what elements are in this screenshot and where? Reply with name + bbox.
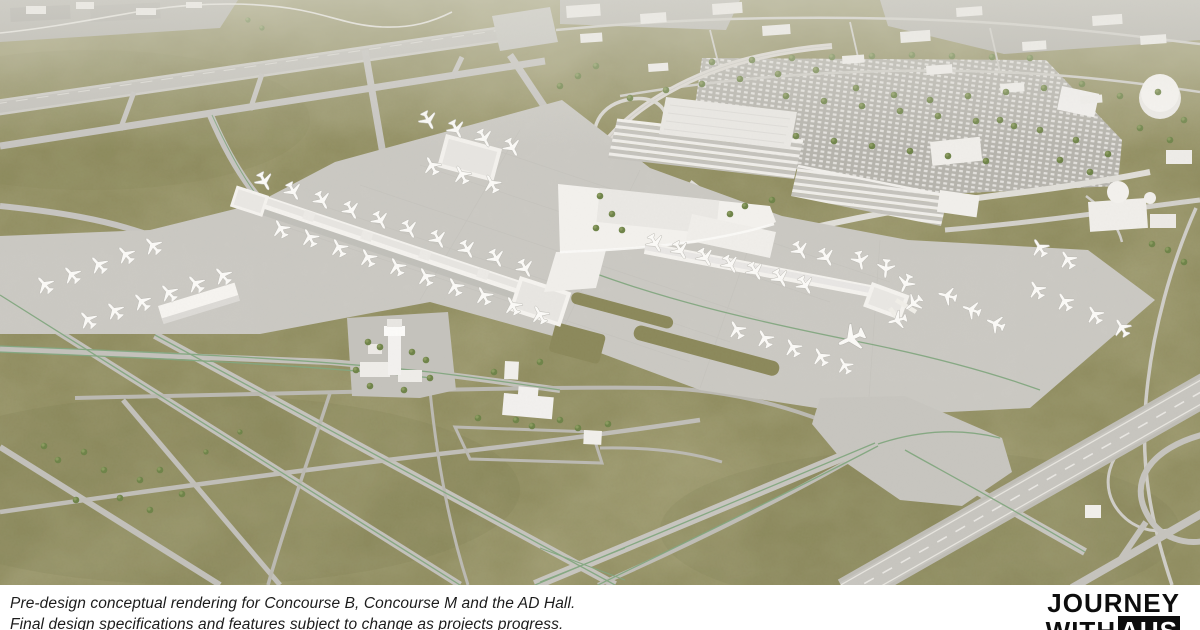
social-card: Pre-design conceptual rendering for Conc… (0, 0, 1200, 630)
caption-bar: Pre-design conceptual rendering for Conc… (0, 585, 1200, 630)
logo-journey-text: JOURNEY (1046, 590, 1180, 616)
airport-aerial-rendering (0, 0, 1200, 585)
rendering-svg (0, 0, 1200, 585)
logo-with-aus-text: WITHAUS (1046, 618, 1180, 630)
journey-with-aus-logo: JOURNEY WITHAUS (1046, 590, 1180, 630)
caption-line2: Final design specifications and features… (10, 614, 770, 630)
caption-line1: Pre-design conceptual rendering for Conc… (10, 593, 770, 614)
logo-with-text: WITH (1046, 616, 1116, 630)
logo-aus-badge: AUS (1118, 616, 1180, 630)
caption: Pre-design conceptual rendering for Conc… (10, 593, 770, 630)
film-grain (0, 0, 1200, 585)
